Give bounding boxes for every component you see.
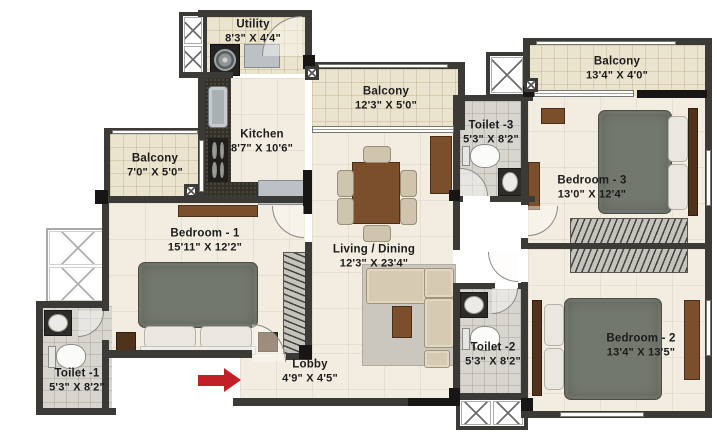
- room-dims: 12'3" X 23'4": [333, 257, 415, 270]
- wc-tank: [48, 346, 56, 368]
- room-label-toilet-2: Toilet -2 5'3" X 8'2": [465, 342, 521, 369]
- wall-segment: [305, 242, 312, 360]
- window: [536, 41, 676, 45]
- dining-chair: [400, 170, 417, 197]
- headboard: [688, 108, 698, 216]
- room-label-balcony-top: Balcony 12'3" X 5'0": [355, 86, 417, 113]
- cabinet: [528, 162, 540, 210]
- wall-segment: [181, 72, 233, 78]
- room-label-balcony-right: Balcony 13'4" X 4'0": [586, 56, 648, 83]
- room-label-kitchen: Kitchen 8'7" X 10'6": [231, 129, 293, 156]
- kitchen-sink: [208, 86, 228, 128]
- duct-x-icon: [493, 401, 523, 425]
- room-name: Bedroom - 2: [606, 333, 675, 347]
- wall-segment: [453, 95, 460, 250]
- wall-segment: [453, 393, 528, 399]
- wall-segment: [521, 238, 528, 249]
- room-dims: 8'3" X 4'4": [225, 32, 281, 45]
- wall-segment: [528, 243, 712, 249]
- room-name: Toilet -2: [465, 342, 521, 356]
- room-name: Utility: [225, 19, 281, 33]
- room-name: Lobby: [282, 359, 338, 373]
- burner-icon: [212, 142, 217, 159]
- room-dims: 13'4" X 13'5": [606, 346, 675, 359]
- room-dims: 12'3" X 5'0": [355, 99, 417, 112]
- dining-chair: [337, 198, 354, 225]
- vent-x-icon: [184, 184, 198, 198]
- wall-column: [521, 398, 533, 411]
- dresser: [178, 205, 258, 217]
- pillow: [544, 304, 564, 346]
- duct-shaft: [486, 52, 528, 98]
- wall-segment: [102, 196, 109, 311]
- entrance-arrow-head-icon: [224, 368, 241, 392]
- bench: [541, 108, 565, 124]
- room-dims: 13'4" X 4'0": [586, 69, 648, 82]
- pillow: [668, 116, 688, 162]
- room-name: Bedroom - 1: [168, 228, 242, 242]
- window: [318, 64, 448, 68]
- wardrobe: [570, 218, 688, 245]
- room-label-balcony-left: Balcony 7'0" X 5'0": [127, 153, 183, 180]
- duct-x-icon: [49, 231, 107, 265]
- headboard: [532, 300, 542, 396]
- room-name: Toilet -1: [49, 368, 105, 382]
- room-name: Balcony: [355, 86, 417, 100]
- sliding-door: [312, 126, 454, 133]
- cabinet: [430, 136, 452, 194]
- pillow: [668, 164, 688, 210]
- door-arc-bedroom-2: [488, 252, 518, 282]
- room-name: Bedroom - 3: [557, 175, 626, 189]
- wall-segment: [36, 408, 116, 415]
- wardrobe-cabinet: [684, 300, 700, 380]
- dining-chair: [400, 198, 417, 225]
- burner-icon: [220, 142, 225, 159]
- dining-chair: [363, 225, 391, 242]
- vent-x-icon: [524, 78, 538, 92]
- window: [560, 412, 644, 417]
- washbasin: [460, 292, 488, 318]
- duct-x-icon: [461, 401, 491, 425]
- wall-segment: [490, 196, 535, 202]
- dining-table: [352, 162, 400, 224]
- burner-icon: [212, 162, 217, 179]
- dining-chair: [337, 170, 354, 197]
- window: [706, 150, 711, 206]
- wall-column: [299, 345, 312, 359]
- washbasin: [498, 168, 522, 196]
- wall-column: [449, 190, 460, 201]
- window: [199, 140, 204, 192]
- coffee-table: [392, 306, 412, 338]
- wc-toilet: [470, 144, 500, 168]
- wall-segment: [453, 288, 460, 398]
- room-label-utility: Utility 8'3" X 4'4": [225, 19, 281, 46]
- exterior-duct: [46, 228, 110, 304]
- wall-column: [449, 388, 460, 399]
- wall-segment: [518, 283, 528, 289]
- duct-x-icon: [184, 46, 202, 73]
- entrance-arrow: [198, 375, 224, 386]
- room-dims: 4'9" X 4'5": [282, 372, 338, 385]
- window: [706, 300, 711, 356]
- room-name: Balcony: [586, 56, 648, 70]
- floor-plan: Utility 8'3" X 4'4" Kitchen 8'7" X 10'6"…: [0, 0, 717, 435]
- wall-segment: [36, 301, 43, 415]
- window: [112, 130, 198, 134]
- bed: [138, 262, 258, 328]
- duct-x-icon: [49, 267, 107, 301]
- room-dims: 8'7" X 10'6": [231, 142, 293, 155]
- dining-chair: [363, 146, 391, 163]
- room-name: Kitchen: [231, 129, 293, 143]
- room-name: Balcony: [127, 153, 183, 167]
- room-label-living-dining: Living / Dining 12'3" X 23'4": [333, 244, 415, 271]
- wall-segment: [453, 283, 495, 289]
- basin-oval-icon: [502, 172, 518, 192]
- room-dims: 5'3" X 8'2": [49, 381, 105, 394]
- vent-x-icon: [305, 66, 319, 80]
- pillow: [544, 348, 564, 390]
- burner-icon: [220, 162, 225, 179]
- pillow: [200, 326, 252, 348]
- sofa-corner: [424, 268, 454, 298]
- wc-tank: [462, 146, 470, 166]
- nightstand: [116, 332, 136, 352]
- room-name: Living / Dining: [333, 244, 415, 258]
- basin-oval-icon: [464, 296, 484, 314]
- window-lintel: [408, 398, 460, 406]
- sofa: [366, 268, 426, 304]
- room-label-bedroom-2: Bedroom - 2 13'4" X 13'5": [606, 333, 675, 360]
- wc-toilet: [56, 344, 86, 369]
- basin-oval-icon: [48, 314, 68, 332]
- wardrobe: [570, 248, 688, 273]
- room-dims: 7'0" X 5'0": [127, 166, 183, 179]
- room-name: Toilet -3: [463, 120, 519, 134]
- wall-column: [95, 190, 108, 204]
- room-label-bedroom-3: Bedroom - 3 13'0" X 12'4": [557, 175, 626, 202]
- pouf: [424, 350, 450, 368]
- washer-drum-icon: [214, 49, 236, 71]
- duct-shaft: [456, 396, 528, 430]
- wall-segment: [36, 301, 109, 308]
- washbasin: [44, 310, 72, 336]
- duct-x-icon: [184, 17, 202, 44]
- sofa-chaise: [424, 298, 454, 348]
- window-lintel: [637, 90, 707, 98]
- duct-shaft: [179, 12, 207, 78]
- room-dims: 13'0" X 12'4": [557, 188, 626, 201]
- room-label-lobby: Lobby 4'9" X 4'5": [282, 359, 338, 386]
- wall-segment: [102, 196, 312, 203]
- sliding-door: [534, 90, 634, 97]
- room-dims: 5'3" X 8'2": [463, 133, 519, 146]
- room-dims: 5'3" X 8'2": [465, 355, 521, 368]
- tv-panel: [303, 170, 312, 214]
- room-label-toilet-1: Toilet -1 5'3" X 8'2": [49, 368, 105, 395]
- room-dims: 15'11" X 12'2": [168, 241, 242, 254]
- room-label-bedroom-1: Bedroom - 1 15'11" X 12'2": [168, 228, 242, 255]
- pillow: [144, 326, 196, 348]
- room-label-toilet-3: Toilet -3 5'3" X 8'2": [463, 120, 519, 147]
- wall-segment: [521, 95, 528, 205]
- stove: [208, 138, 228, 182]
- wall-segment: [104, 350, 252, 358]
- duct-x-icon: [491, 57, 523, 93]
